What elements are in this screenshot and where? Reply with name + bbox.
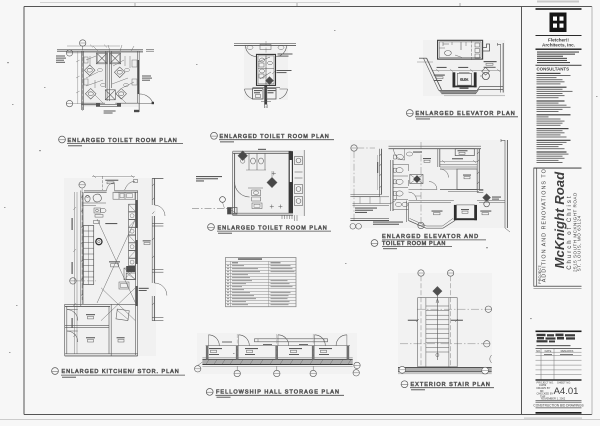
svg-text:TOILET ROOM PLAN: TOILET ROOM PLAN — [382, 241, 446, 247]
svg-text:ENLARGED KITCHEN/ STOR. PLAN: ENLARGED KITCHEN/ STOR. PLAN — [62, 369, 180, 375]
svg-text:EXTERIOR STAIR PLAN: EXTERIOR STAIR PLAN — [411, 382, 491, 388]
svg-text:DATE: DATE — [545, 349, 552, 353]
svg-text:NO.: NO. — [536, 349, 541, 353]
svg-text:Architects, Inc.: Architects, Inc. — [542, 42, 575, 47]
svg-text:ENLARGED TOILET ROOM PLAN: ENLARGED TOILET ROOM PLAN — [68, 138, 178, 144]
svg-text:ENLARGED ELEVATOR PLAN: ENLARGED ELEVATOR PLAN — [416, 111, 516, 117]
svg-text:ADDITION AND RENOVATIONS TO: ADDITION AND RENOVATIONS TO — [542, 168, 548, 282]
svg-text:ELEV.: ELEV. — [460, 78, 468, 82]
svg-text:ENLARGED ELEVATOR AND: ENLARGED ELEVATOR AND — [382, 234, 479, 240]
svg-text:A4.01: A4.01 — [554, 386, 579, 397]
svg-text:ST. LOUIS, MO 63124: ST. LOUIS, MO 63124 — [577, 215, 582, 271]
svg-text:CONSULTANTS: CONSULTANTS — [537, 67, 570, 72]
svg-text:REMARKS: REMARKS — [561, 349, 574, 353]
svg-text:CONSTRUCTION BID DRAWINGS: CONSTRUCTION BID DRAWINGS — [533, 403, 583, 407]
svg-text:NOVEMBER 1, 2002: NOVEMBER 1, 2002 — [541, 397, 566, 401]
svg-text:SHEET NO.: SHEET NO. — [557, 380, 571, 384]
svg-text:ENLARGED TOILET ROOM PLAN: ENLARGED TOILET ROOM PLAN — [218, 225, 328, 231]
svg-text:FELLOWSHIP HALL STORAGE PLAN: FELLOWSHIP HALL STORAGE PLAN — [216, 390, 340, 396]
svg-text:ENLARGED TOILET ROOM PLAN: ENLARGED TOILET ROOM PLAN — [220, 134, 330, 140]
svg-text:McKnight Road: McKnight Road — [552, 171, 567, 269]
